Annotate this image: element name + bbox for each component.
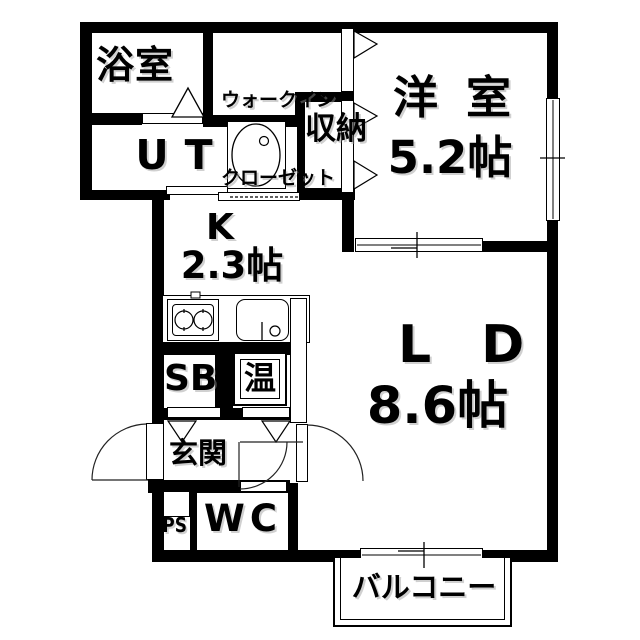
western-room-label: 洋室 <box>362 74 542 121</box>
western-room-side-window <box>546 98 560 221</box>
stove-inner <box>172 304 214 336</box>
kitchen-label: K <box>196 209 244 247</box>
heater-door-v-icon <box>262 421 290 442</box>
wall-right-upper <box>547 22 558 100</box>
wall-ld-divider <box>480 241 558 252</box>
kitchen-sink <box>236 299 289 341</box>
storage-label: 収納 <box>305 106 341 152</box>
wall-wc-right <box>288 483 298 562</box>
counter-partition <box>290 298 307 423</box>
wic-door-triangle-icon <box>354 31 377 58</box>
bathroom-label: 浴室 <box>85 46 185 86</box>
wc-door-opening <box>240 481 287 492</box>
wall-sb-heater-divider <box>215 343 233 408</box>
bathroom-door-opening <box>142 113 203 124</box>
pipe-space-label: PS <box>161 515 188 536</box>
entrance-label: 玄関 <box>158 438 238 468</box>
toilet-label: WC <box>198 500 288 539</box>
living-dining-label: LD <box>348 318 533 373</box>
wall-bath-bottom <box>80 113 142 125</box>
western-room-sliding-door <box>355 238 483 252</box>
western-room-size: 5.2帖 <box>360 134 540 181</box>
shoebox-door-opening <box>167 407 221 418</box>
ld-door-leaf <box>296 424 308 482</box>
wall-top <box>80 22 558 33</box>
heater-door-opening <box>242 407 290 418</box>
wall-right-lower <box>547 221 558 562</box>
water-heater-label: 温 <box>240 362 280 396</box>
living-dining-size: 8.6帖 <box>340 380 535 434</box>
utility-label: UT <box>118 134 230 177</box>
kitchen-size: 2.3帖 <box>168 247 296 286</box>
entrance-door-arc <box>92 424 146 480</box>
wall-ps-right <box>190 493 197 550</box>
balcony-label: バルコニー <box>343 572 505 602</box>
floorplan: 浴室 ウォークイン クローゼット 洋室 5.2帖 UT 収納 K 2.3帖 LD… <box>0 0 640 640</box>
shoebox-label: SB <box>164 360 214 398</box>
wall-bottom-left <box>152 550 362 562</box>
